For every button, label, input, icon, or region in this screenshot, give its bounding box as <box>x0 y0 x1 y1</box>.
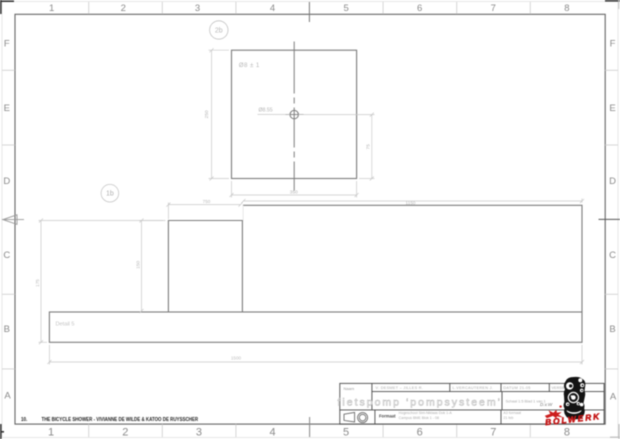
svg-text:150: 150 <box>136 260 142 268</box>
svg-text:Ø8.55: Ø8.55 <box>259 108 273 114</box>
svg-text:A3 formaat: A3 formaat <box>503 411 521 415</box>
svg-text:1500: 1500 <box>231 356 242 361</box>
svg-text:DATUM 21-05: DATUM 21-05 <box>503 386 530 390</box>
svg-text:2: 2 <box>122 427 128 439</box>
svg-text:E: E <box>4 103 10 114</box>
svg-text:L.VERCAUTEREN J.: L.VERCAUTEREN J. <box>453 386 494 390</box>
svg-text:Detail 5: Detail 5 <box>56 322 75 328</box>
svg-text:21 feb: 21 feb <box>503 416 513 420</box>
svg-text:175: 175 <box>35 279 40 287</box>
svg-text:6: 6 <box>417 3 422 14</box>
svg-text:7: 7 <box>491 3 496 14</box>
svg-text:D: D <box>3 176 10 187</box>
svg-text:4: 4 <box>269 427 275 439</box>
svg-text:Hogeschool Sint-Niklaas Dok 1-: Hogeschool Sint-Niklaas Dok 1-A <box>399 411 453 415</box>
svg-text:10.: 10. <box>21 416 28 423</box>
svg-text:750: 750 <box>203 199 211 204</box>
svg-text:250: 250 <box>204 110 210 118</box>
svg-text:6: 6 <box>417 427 423 439</box>
svg-text:3: 3 <box>196 427 202 439</box>
svg-text:Naam: Naam <box>344 386 355 391</box>
svg-text:1150: 1150 <box>406 201 416 206</box>
svg-text:F: F <box>4 39 10 50</box>
svg-text:Ø8 ± 1: Ø8 ± 1 <box>239 62 260 69</box>
svg-text:75: 75 <box>366 144 372 150</box>
svg-text:5: 5 <box>343 427 349 439</box>
svg-text:8: 8 <box>564 427 570 439</box>
svg-text:4: 4 <box>270 3 275 14</box>
svg-text:B: B <box>609 324 615 335</box>
svg-text:1b: 1b <box>106 191 114 198</box>
svg-text:A: A <box>610 392 617 403</box>
svg-text:E: E <box>609 103 615 114</box>
svg-text:1: 1 <box>48 427 54 439</box>
svg-text:C: C <box>3 250 10 261</box>
svg-text:7: 7 <box>490 427 496 439</box>
svg-text:A: A <box>4 391 11 402</box>
svg-text:D.v.W: D.v.W <box>540 402 553 407</box>
svg-text:V. DESMET – JILLES R.: V. DESMET – JILLES R. <box>376 386 424 390</box>
svg-text:2: 2 <box>121 3 126 14</box>
svg-text:C: C <box>609 250 616 261</box>
svg-text:8: 8 <box>564 3 569 14</box>
svg-text:F: F <box>610 39 616 50</box>
svg-text:fietspomp ‘pompsysteem’: fietspomp ‘pompsysteem’ <box>338 396 502 408</box>
svg-text:D: D <box>609 176 616 187</box>
svg-text:B: B <box>4 324 10 335</box>
svg-text:THE BICYCLE SHOWER - VIVIANNE: THE BICYCLE SHOWER - VIVIANNE DE WILDE &… <box>42 416 199 423</box>
svg-text:350: 350 <box>290 190 298 196</box>
svg-text:Formaat: Formaat <box>379 413 396 418</box>
svg-text:2b: 2b <box>215 28 223 35</box>
svg-text:1: 1 <box>49 3 54 14</box>
svg-text:Campus BME Blok 1 - 08: Campus BME Blok 1 - 08 <box>399 416 439 420</box>
svg-text:3: 3 <box>195 3 200 14</box>
svg-text:5: 5 <box>343 3 348 14</box>
